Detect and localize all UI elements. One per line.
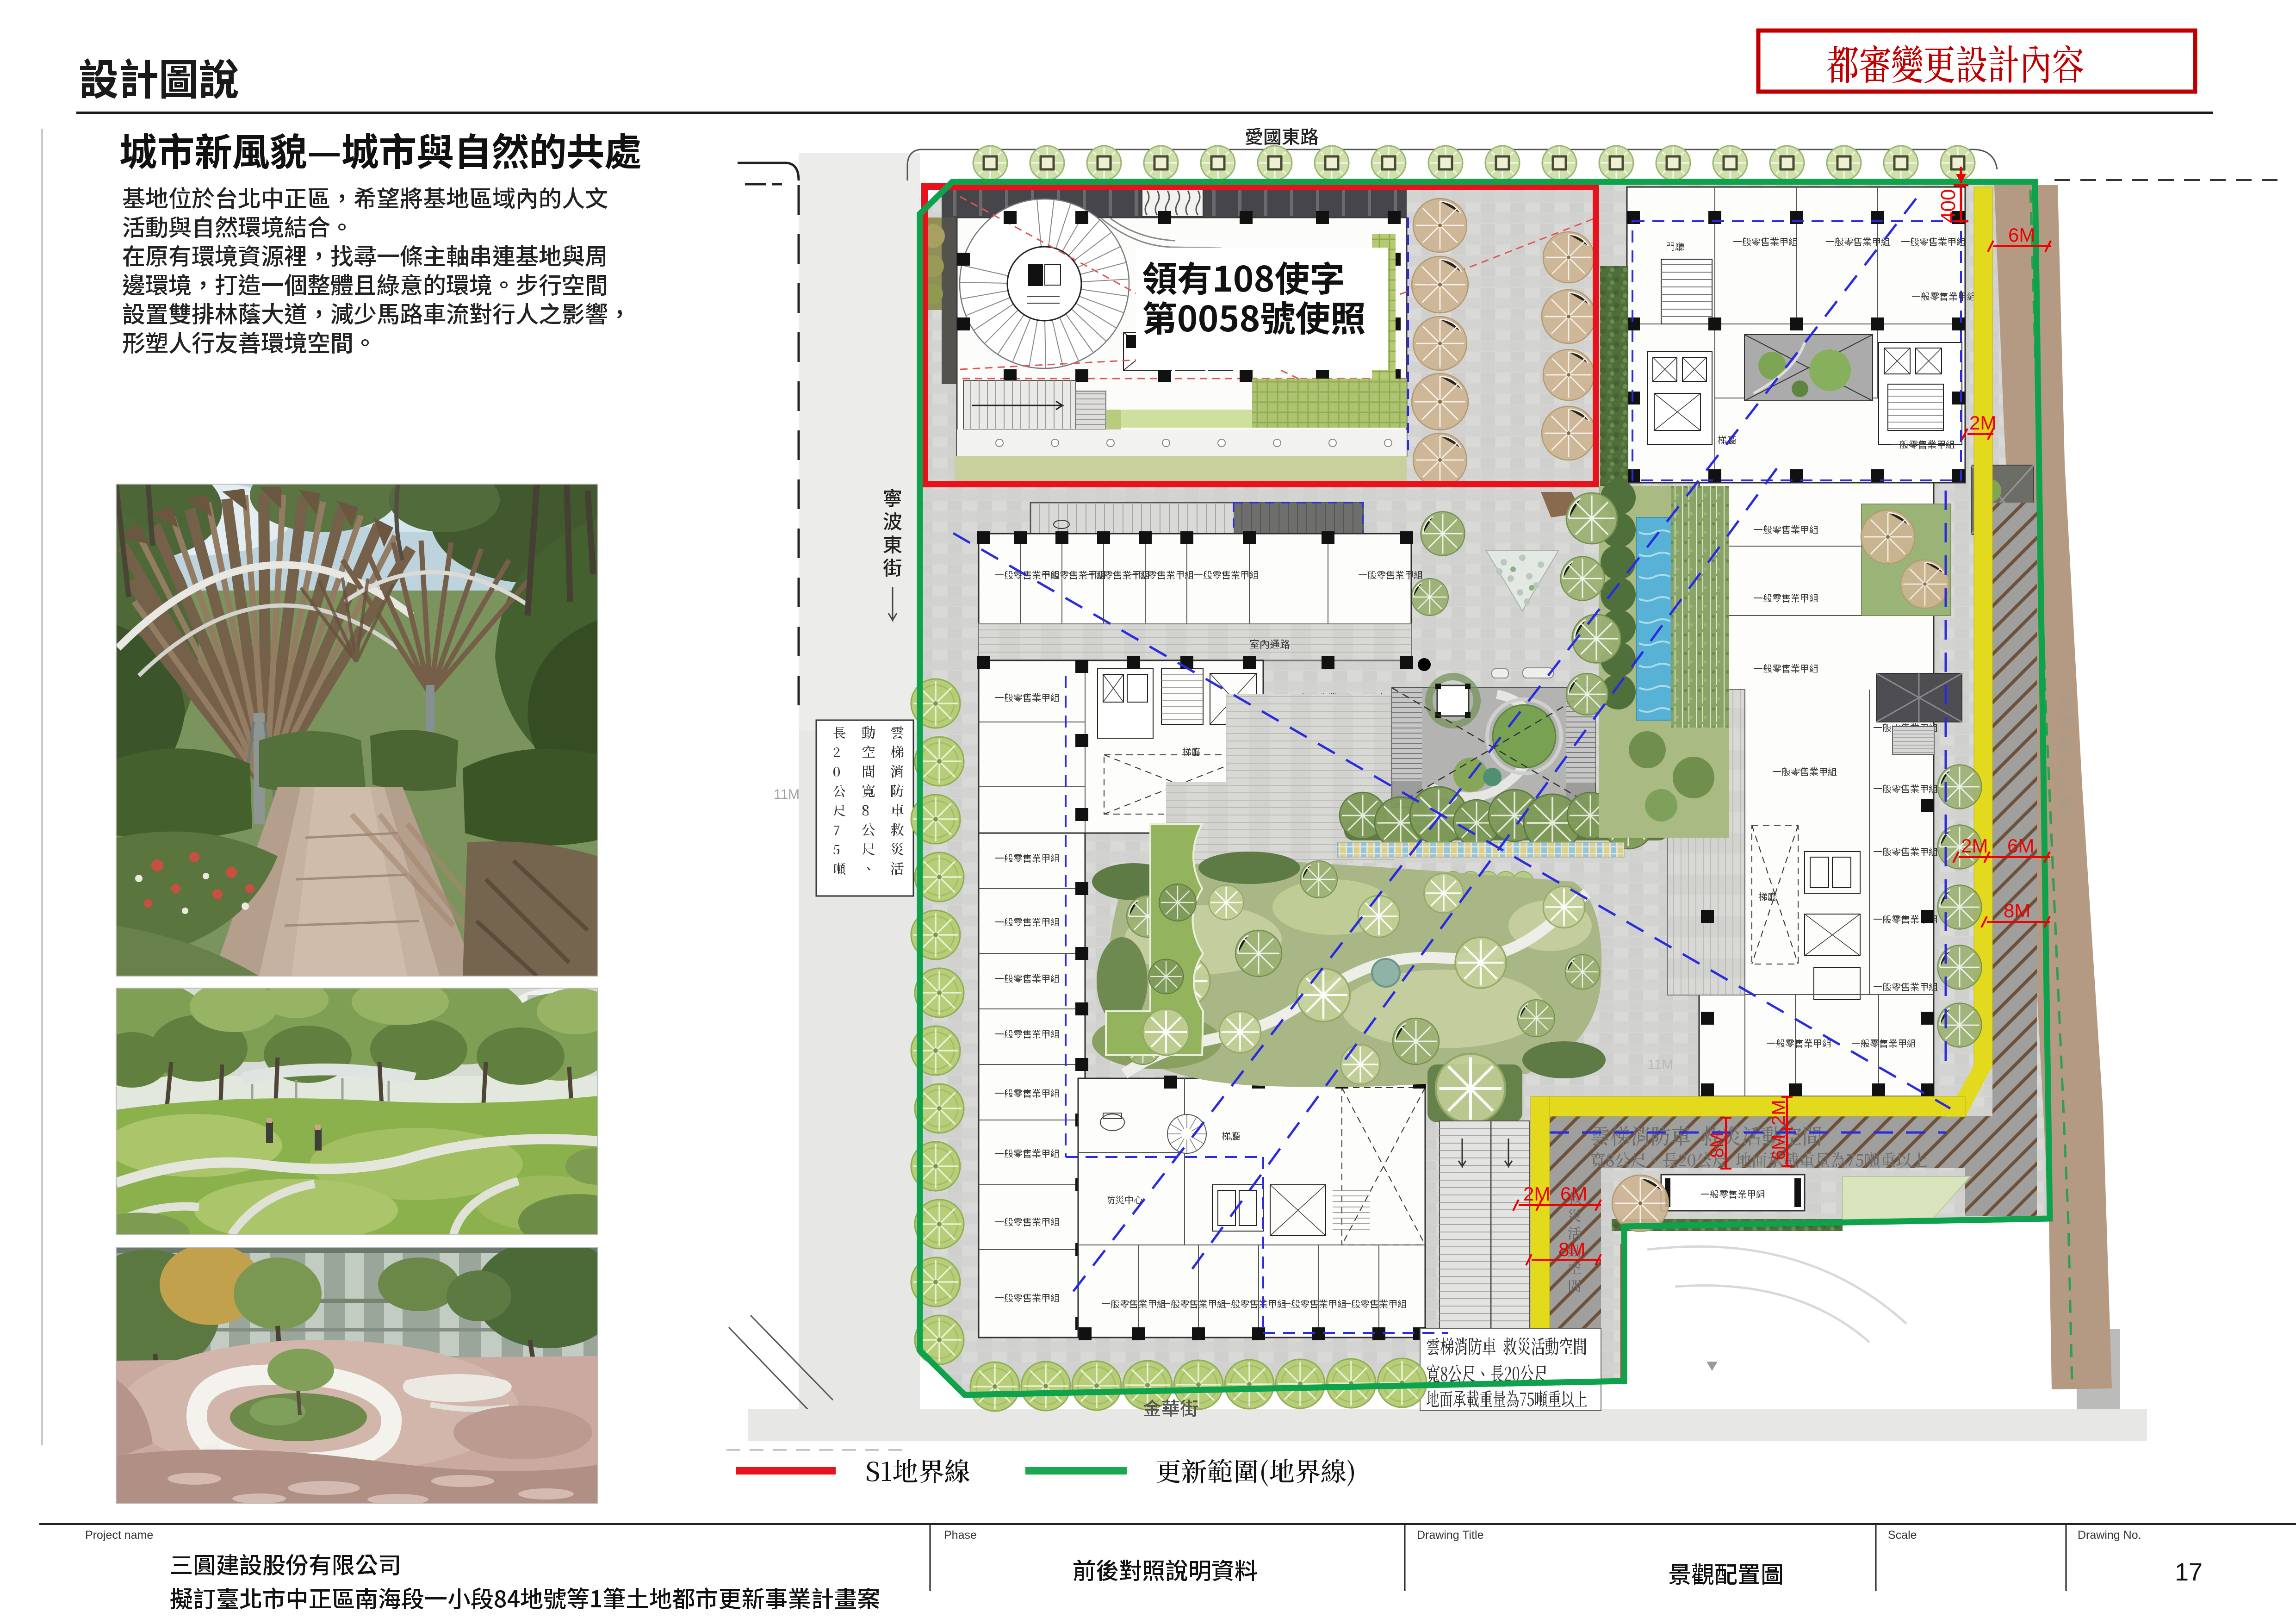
- svg-text:Scale: Scale: [1888, 1529, 1917, 1542]
- svg-text:2M: 2M: [1523, 1183, 1550, 1205]
- svg-text:6M: 6M: [1560, 1183, 1587, 1205]
- svg-text:6M: 6M: [2007, 835, 2034, 857]
- svg-text:11M: 11M: [1647, 1057, 1673, 1072]
- svg-text:11M: 11M: [774, 787, 800, 802]
- svg-text:2M: 2M: [1969, 412, 1996, 434]
- svg-text:8M: 8M: [1707, 1132, 1727, 1158]
- svg-text:6M: 6M: [1769, 1134, 1789, 1160]
- svg-text:2M: 2M: [1769, 1100, 1789, 1126]
- svg-text:8M: 8M: [1558, 1238, 1585, 1260]
- svg-text:Phase: Phase: [944, 1529, 977, 1542]
- svg-text:17: 17: [2175, 1558, 2203, 1586]
- svg-text:Drawing No.: Drawing No.: [2078, 1529, 2141, 1542]
- svg-text:8M: 8M: [2004, 900, 2030, 921]
- svg-text:6M: 6M: [2008, 224, 2035, 246]
- svg-text:Project name: Project name: [85, 1529, 153, 1542]
- svg-text:2M: 2M: [1961, 835, 1988, 857]
- svg-text:Drawing Title: Drawing Title: [1417, 1529, 1484, 1542]
- svg-text:400: 400: [1937, 189, 1960, 223]
